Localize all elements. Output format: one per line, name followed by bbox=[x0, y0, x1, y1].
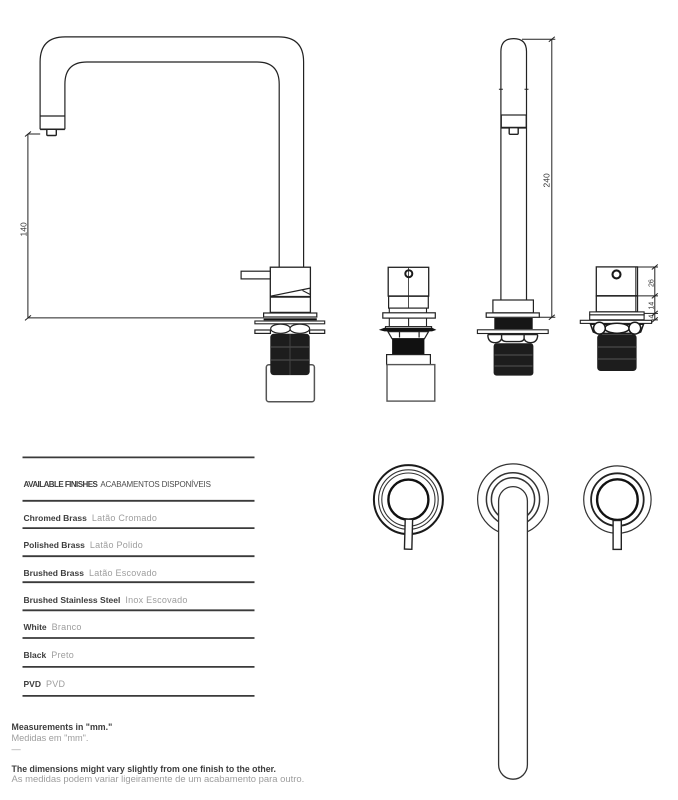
svg-text:140: 140 bbox=[18, 222, 28, 236]
svg-text:14: 14 bbox=[649, 302, 656, 310]
svg-text:26: 26 bbox=[649, 279, 656, 287]
svg-text:240: 240 bbox=[542, 173, 552, 187]
svg-text:4: 4 bbox=[649, 315, 656, 319]
